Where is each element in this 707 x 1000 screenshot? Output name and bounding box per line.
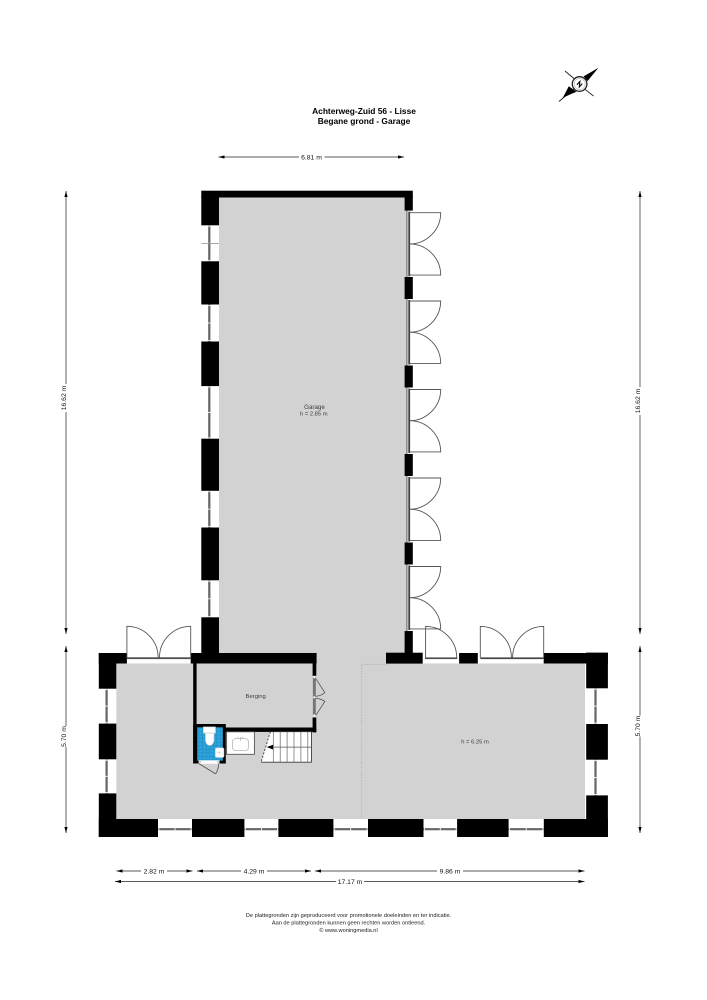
svg-text:De plattegronden zijn geproduc: De plattegronden zijn geproduceerd voor …: [246, 913, 452, 919]
svg-text:Aan de plattegronden kunnen ge: Aan de plattegronden kunnen geen rechten…: [272, 921, 426, 927]
svg-text:h = 2.85 m: h = 2.85 m: [300, 412, 328, 418]
svg-text:Achterweg-Zuid 56 - Lisse: Achterweg-Zuid 56 - Lisse: [312, 106, 416, 116]
svg-text:17.17 m: 17.17 m: [338, 879, 363, 886]
svg-text:Begane grond - Garage: Begane grond - Garage: [318, 116, 411, 126]
svg-text:Berging: Berging: [246, 694, 266, 700]
svg-text:6.81 m: 6.81 m: [301, 154, 322, 161]
svg-text:h = 6.25 m: h = 6.25 m: [461, 740, 489, 746]
svg-text:16.62 m: 16.62 m: [61, 385, 68, 410]
svg-text:4.29 m: 4.29 m: [244, 868, 265, 875]
svg-text:Garage: Garage: [304, 404, 325, 411]
svg-text:2.82 m: 2.82 m: [144, 868, 165, 875]
svg-text:© www.woningmedia.nl: © www.woningmedia.nl: [319, 927, 377, 934]
svg-text:5.70 m: 5.70 m: [61, 726, 68, 747]
svg-text:5.70 m: 5.70 m: [635, 715, 642, 736]
svg-text:16.62 m: 16.62 m: [635, 388, 642, 413]
svg-text:9.86 m: 9.86 m: [440, 868, 461, 875]
